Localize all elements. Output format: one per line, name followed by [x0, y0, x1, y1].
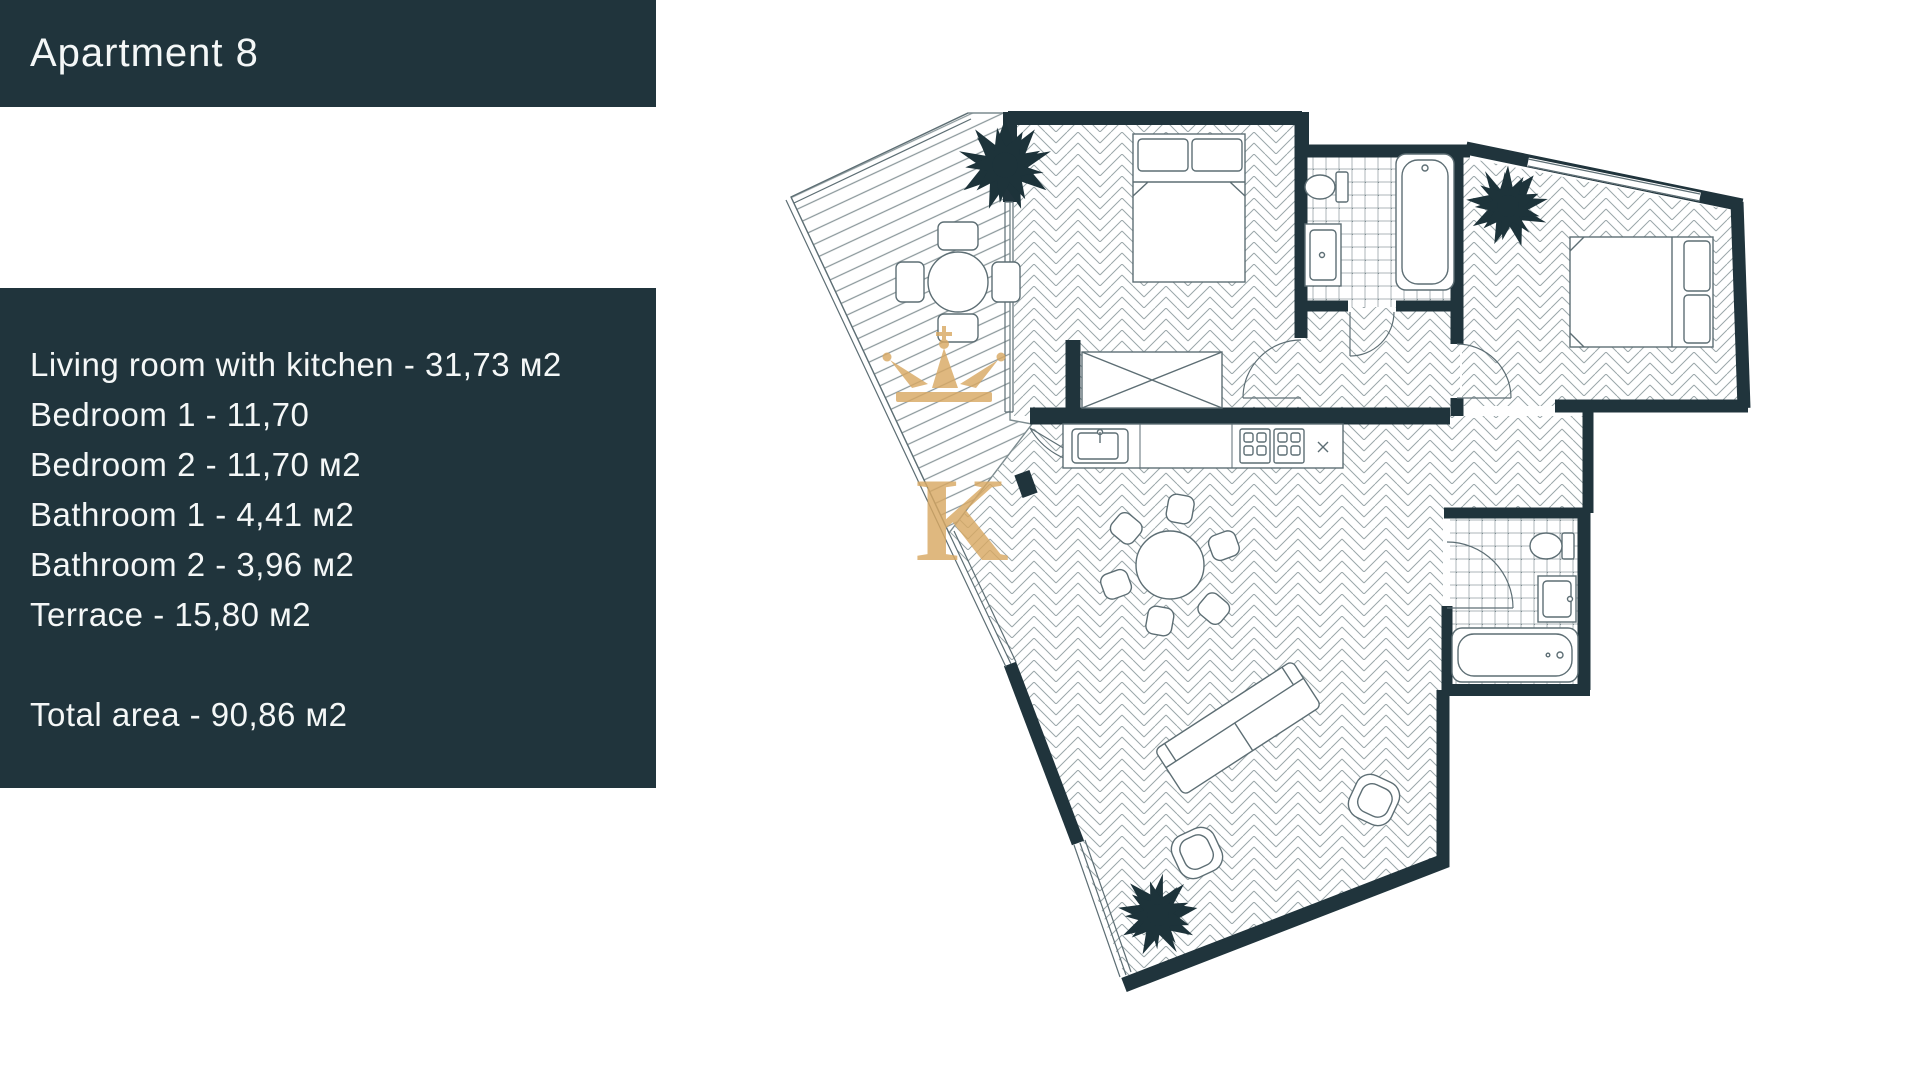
kitchen-counter: [1063, 424, 1343, 468]
sink-2: [1538, 576, 1576, 622]
kitchen-sink: [1072, 429, 1128, 463]
page: Apartment 8 Living room with kitchen - 3…: [0, 0, 1920, 1080]
bed-1: [1133, 134, 1245, 282]
corridor2-floor: [1443, 416, 1588, 513]
toilet-1: [1305, 172, 1348, 202]
floor-plan: K: [0, 0, 1920, 1080]
toilet-2: [1530, 533, 1574, 559]
sink-1: [1305, 224, 1341, 286]
watermark-letter: K: [915, 453, 1008, 586]
bed-2: [1570, 237, 1713, 347]
wardrobe: [1082, 352, 1222, 408]
bathtub-1: [1396, 154, 1454, 290]
bathtub-2: [1452, 628, 1578, 682]
corridor-floor: [1301, 307, 1460, 416]
